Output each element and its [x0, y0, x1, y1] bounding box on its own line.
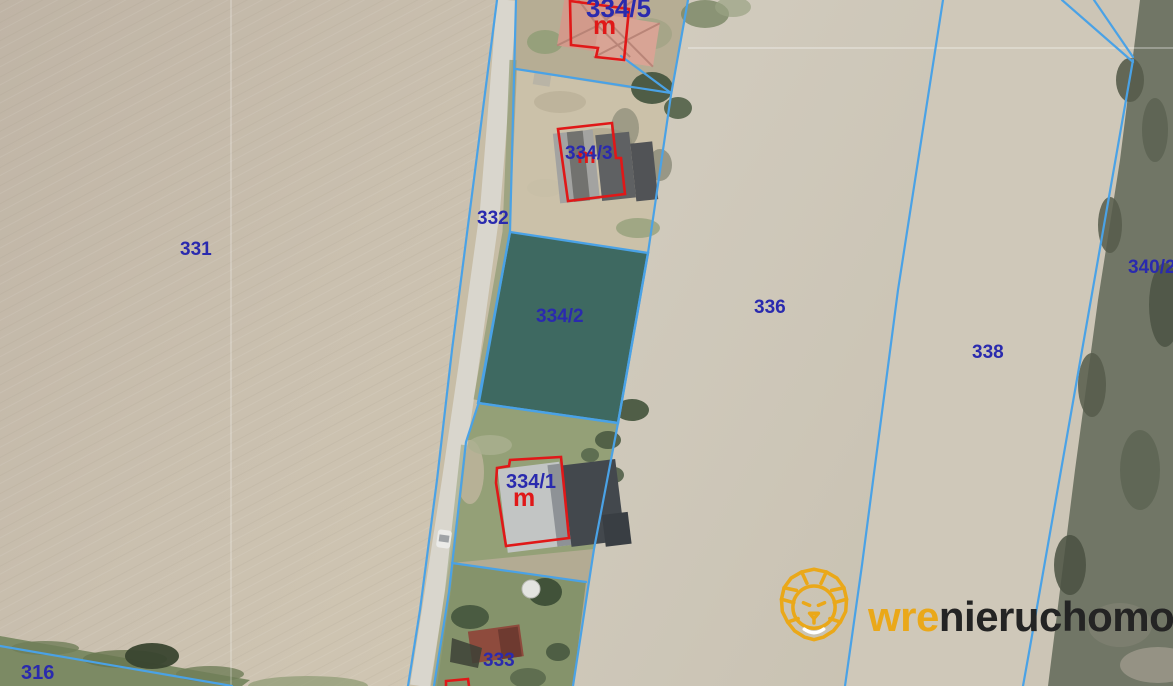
building-marker-m: m: [593, 12, 616, 38]
bush: [125, 643, 179, 669]
parcel-label-336: 336: [754, 298, 786, 317]
building-marker-m: m: [513, 486, 535, 511]
parcel-label-334-2: 334/2: [536, 307, 584, 326]
map-viewport[interactable]: 331 332 334/5 m m 334/3 334/2 334/1 m 33…: [0, 0, 1173, 686]
parcel-label-340: 340/2: [1128, 258, 1173, 277]
parcel-label-338: 338: [972, 343, 1004, 362]
car: [436, 529, 452, 549]
parcel-label-334-3: 334/3: [565, 144, 613, 163]
parcel-label-331: 331: [180, 240, 212, 259]
parcel-label-333: 333: [483, 651, 515, 670]
parcel-label-316: 316: [21, 663, 54, 683]
parcel-label-332: 332: [477, 209, 509, 228]
white-dome: [522, 580, 540, 598]
